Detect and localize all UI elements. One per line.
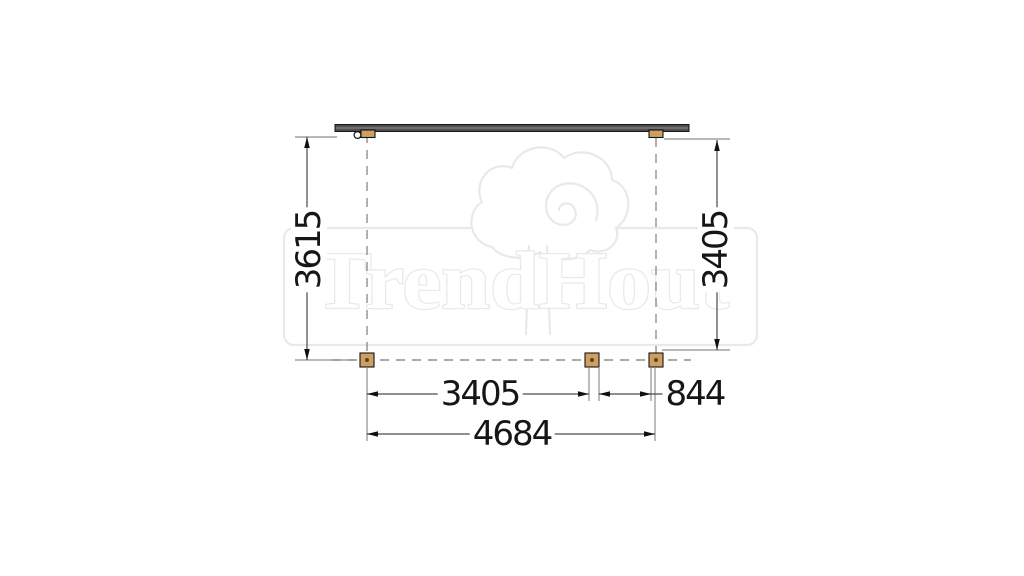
dim-label-span-total: 4684 bbox=[470, 416, 555, 452]
wall-bracket-left bbox=[361, 130, 375, 138]
arrowhead bbox=[644, 431, 655, 437]
wall-bracket-right bbox=[649, 130, 663, 138]
arrowhead bbox=[640, 391, 651, 397]
arrowhead bbox=[367, 431, 378, 437]
arrowhead bbox=[599, 391, 610, 397]
dim-label-span-overhang: 844 bbox=[663, 376, 728, 412]
arrowhead bbox=[714, 339, 720, 350]
post-middle-center bbox=[590, 358, 594, 362]
arrowhead bbox=[367, 391, 378, 397]
dim-label-span-field: 3405 bbox=[438, 376, 523, 412]
dim-label-depth-left: 3615 bbox=[291, 208, 327, 293]
arrowhead bbox=[304, 137, 310, 148]
post-left-center bbox=[365, 358, 369, 362]
arrowhead bbox=[304, 349, 310, 360]
dim-label-depth-right: 3405 bbox=[698, 208, 734, 293]
plan-linework bbox=[0, 0, 1024, 576]
post-right-center bbox=[654, 358, 658, 362]
veranda-plan-drawing: TrendHout bbox=[0, 0, 1024, 576]
wall-anchor-icon bbox=[354, 132, 361, 139]
arrowhead bbox=[578, 391, 589, 397]
arrowhead bbox=[714, 140, 720, 151]
